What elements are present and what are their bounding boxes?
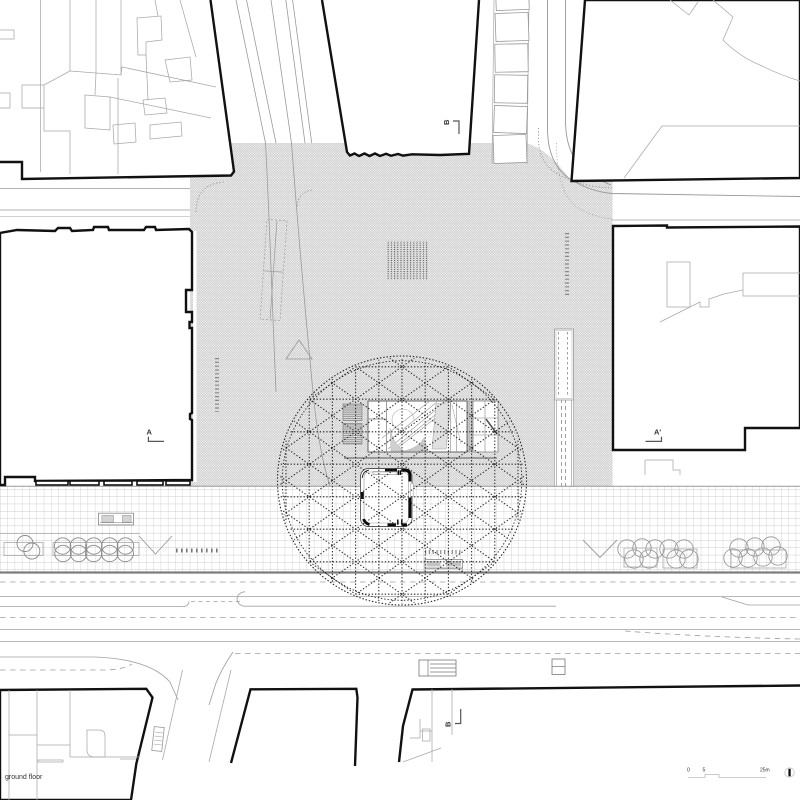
svg-text:25m: 25m [760,768,770,774]
svg-text:0: 0 [687,768,690,774]
svg-text:5: 5 [703,768,706,774]
svg-text:ground floor: ground floor [5,774,43,781]
svg-text:A': A' [654,428,661,437]
svg-text:A: A [147,428,153,437]
svg-text:B: B [442,119,451,125]
svg-text:B: B [444,721,453,727]
